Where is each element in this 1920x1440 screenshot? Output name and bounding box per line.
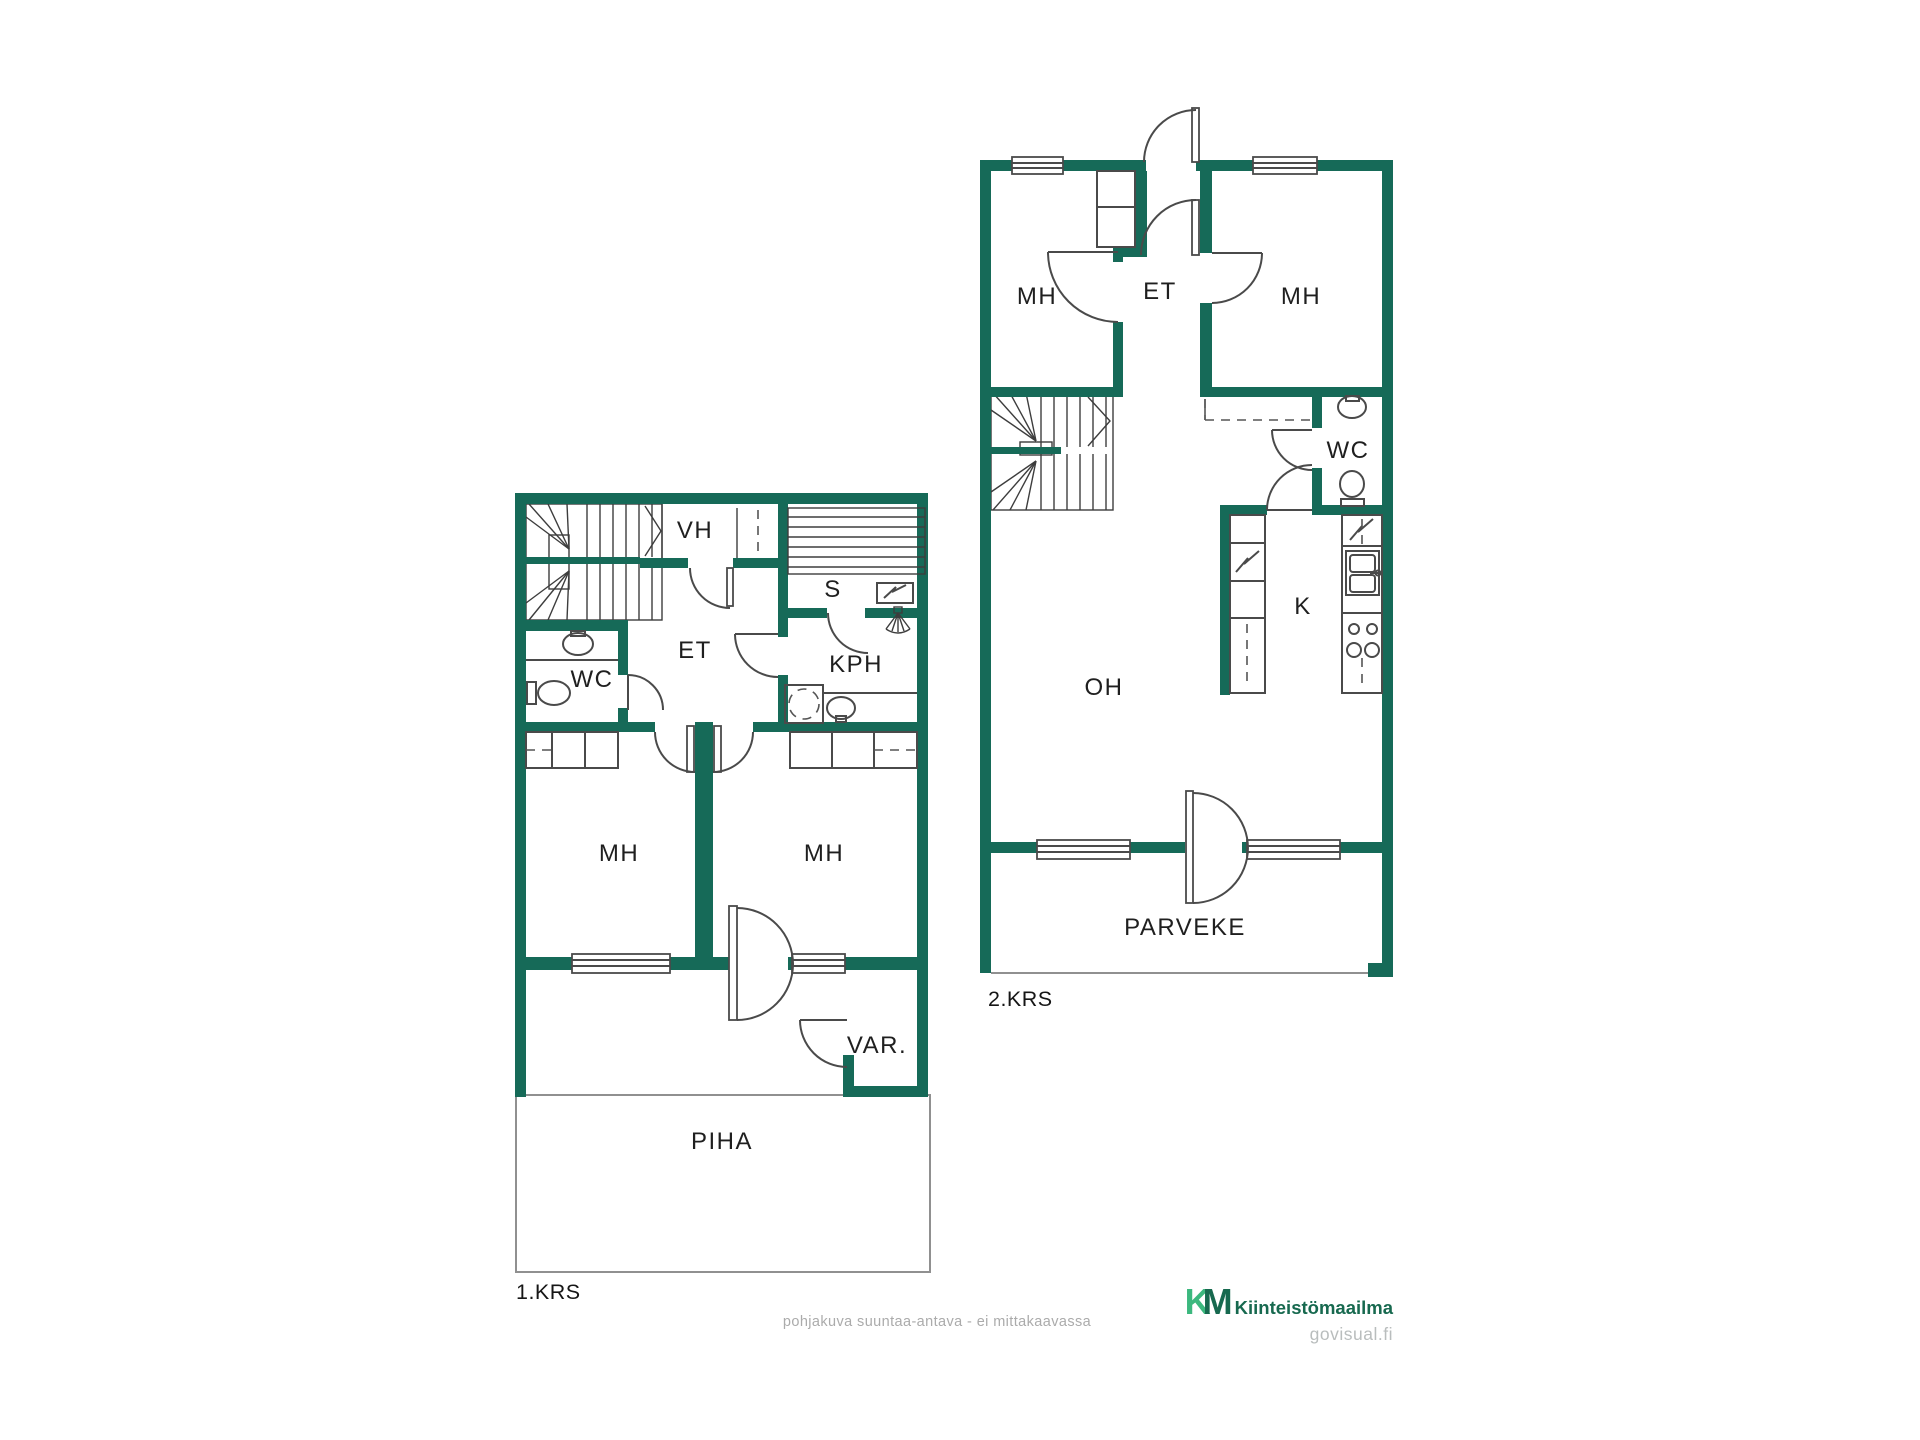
room-label-var: VAR. [847, 1032, 907, 1060]
room-label-kph: KPH [829, 651, 883, 679]
door-arc [735, 634, 778, 677]
floor1-stair-rail-wall [526, 557, 640, 564]
room-label-oh: OH [1085, 674, 1124, 702]
room-label-s: S [824, 576, 842, 604]
logo-m-glyph: M [1203, 1281, 1233, 1323]
door-arc [1048, 252, 1118, 322]
door-leaf [727, 568, 733, 606]
door-arc [1272, 430, 1312, 470]
floor1-label: 1.KRS [516, 1280, 581, 1305]
floor1-window [572, 954, 670, 973]
floorplan-canvas [0, 0, 1920, 1440]
floorplan-page: { "colors": { "wall_green": "#166A58", "… [0, 0, 1920, 1440]
stove-icon [1347, 624, 1379, 657]
room-label-parveke: PARVEKE [1124, 914, 1246, 942]
floor1-washing-machine-icon [785, 685, 823, 723]
door-leaf [1192, 200, 1199, 255]
door-arc [800, 1020, 847, 1067]
brand-logo-row: K M Kiinteistömaailma [1185, 1281, 1393, 1323]
room-label-mh-2-left: MH [1017, 283, 1057, 311]
room-label-et-1: ET [678, 637, 712, 665]
room-label-vh: VH [677, 517, 713, 545]
room-label-mh-1-left: MH [599, 840, 639, 868]
floor1-front-door-gap [731, 956, 788, 971]
brand-name-text: Kiinteistömaailma [1235, 1297, 1393, 1319]
floor1-heater-symbol-icon [877, 583, 913, 603]
door-arc [690, 568, 730, 608]
floor2-wc-sink-icon [1338, 396, 1366, 418]
floor2-window [1253, 157, 1317, 174]
floor2-window [1247, 840, 1340, 859]
floor1-wc-sink-icon [526, 631, 618, 660]
entry-door-arc [1144, 110, 1196, 162]
floor2-window [1012, 157, 1063, 174]
floor1-kph-sink-icon [823, 693, 917, 722]
appliance-symbol-icon [1236, 551, 1259, 572]
balcony-door-leaf [1186, 791, 1193, 903]
floor2-kitchen-counter [1342, 515, 1382, 693]
room-label-wc-2: WC [1327, 437, 1370, 465]
disclaimer-text: pohjakuva suuntaa-antava - ei mittakaava… [783, 1314, 1091, 1330]
watermark-text: govisual.fi [1185, 1324, 1393, 1345]
floor1-walls [515, 493, 928, 1097]
room-label-piha: PIHA [691, 1128, 753, 1156]
floor1-doors [628, 568, 868, 1067]
floor2-stair-rail-wall [991, 447, 1061, 454]
floor1-yard-outline [516, 1095, 930, 1272]
floor2-wardrobe [1205, 399, 1312, 420]
door-arc [628, 675, 663, 710]
floor1-window [792, 954, 845, 973]
door-arc [828, 613, 868, 653]
floor2-plan [980, 108, 1393, 977]
door-leaf [687, 726, 694, 772]
floor2-hall-closet [1097, 171, 1135, 247]
floor2-window [1037, 840, 1130, 859]
floor2-kitchen-island [1230, 515, 1265, 693]
floor1-sauna-bench-icon [788, 508, 925, 574]
floor2-doors [1048, 108, 1312, 903]
room-label-et-2: ET [1143, 278, 1177, 306]
room-label-wc-1: WC [571, 666, 614, 694]
floor2-toilet-icon [1340, 471, 1364, 506]
room-label-k: K [1294, 593, 1312, 621]
room-label-mh-1-right: MH [804, 840, 844, 868]
room-label-mh-2-right: MH [1281, 283, 1321, 311]
door-arc [1212, 253, 1262, 303]
entry-door-leaf [1192, 108, 1199, 162]
door-arc [1267, 465, 1312, 510]
door-leaf [714, 726, 721, 772]
floor2-label: 2.KRS [988, 987, 1053, 1012]
brand-logo: K M Kiinteistömaailma govisual.fi [1185, 1281, 1393, 1345]
door-arc [1141, 200, 1196, 255]
front-door-leaf [729, 906, 737, 1020]
kitchen-sink-icon [1346, 551, 1381, 595]
floor1-toilet-icon [527, 681, 570, 705]
floor2-entry-gap [1146, 160, 1196, 171]
